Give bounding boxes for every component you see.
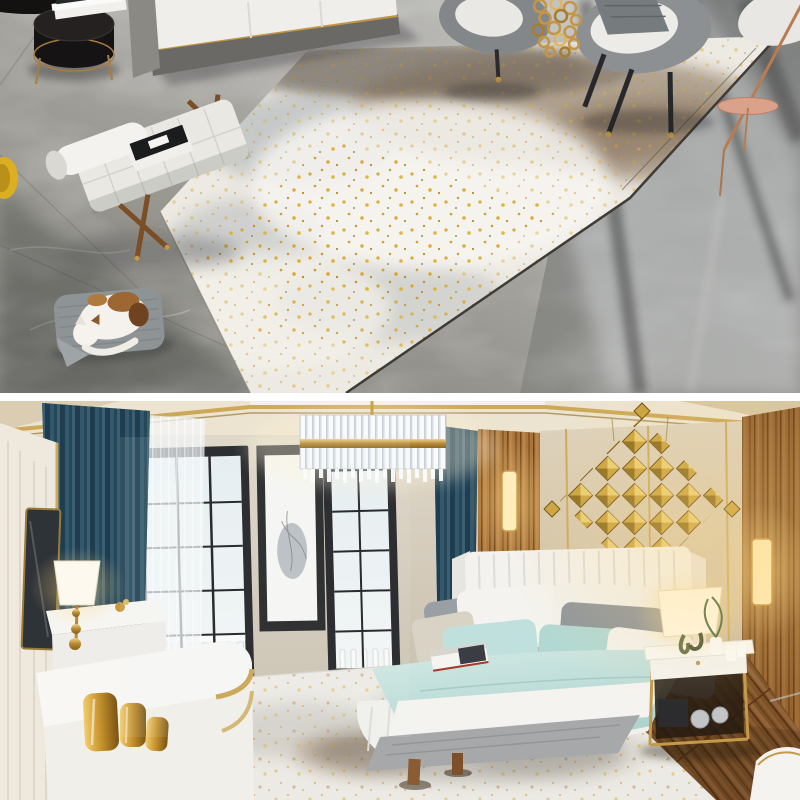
glass-jar [691, 710, 709, 728]
window-light [120, 437, 410, 737]
bed-leg-2 [452, 753, 463, 775]
glass-jar-2 [712, 707, 728, 723]
bedroom-photo [0, 401, 800, 800]
collage-divider [0, 393, 800, 401]
sofa-arm [128, 0, 160, 78]
photo-collage [0, 0, 800, 800]
bed-leg [407, 759, 420, 786]
living-room-photo [0, 0, 800, 393]
bedroom-scene [0, 401, 800, 800]
lamp-shade-left [54, 561, 100, 605]
living-room-scene [0, 0, 800, 393]
